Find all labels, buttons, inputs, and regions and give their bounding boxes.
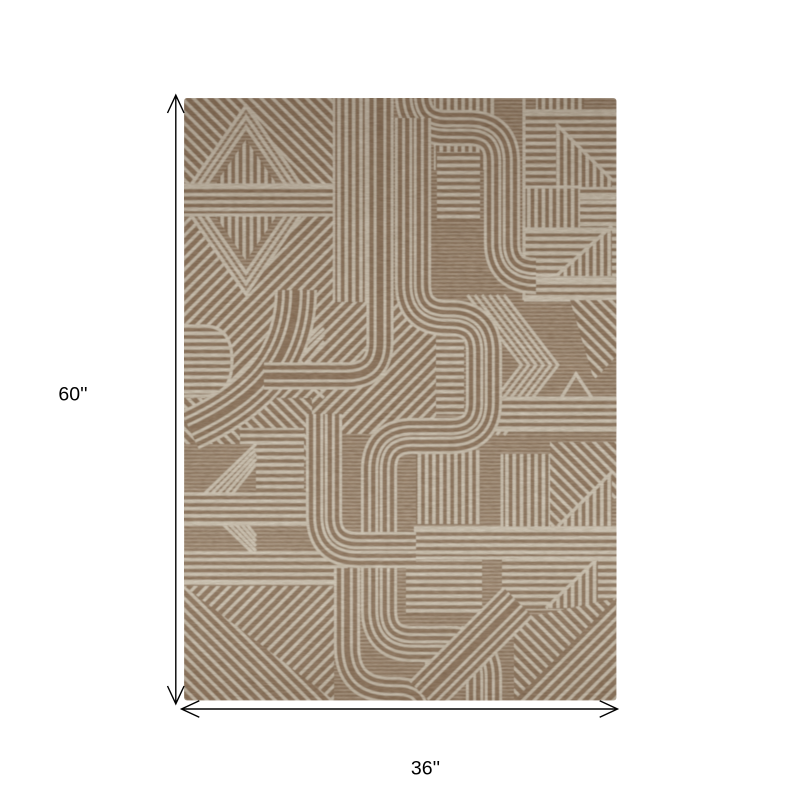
svg-text:60'': 60'' — [58, 384, 87, 406]
svg-text:36'': 36'' — [411, 758, 440, 780]
